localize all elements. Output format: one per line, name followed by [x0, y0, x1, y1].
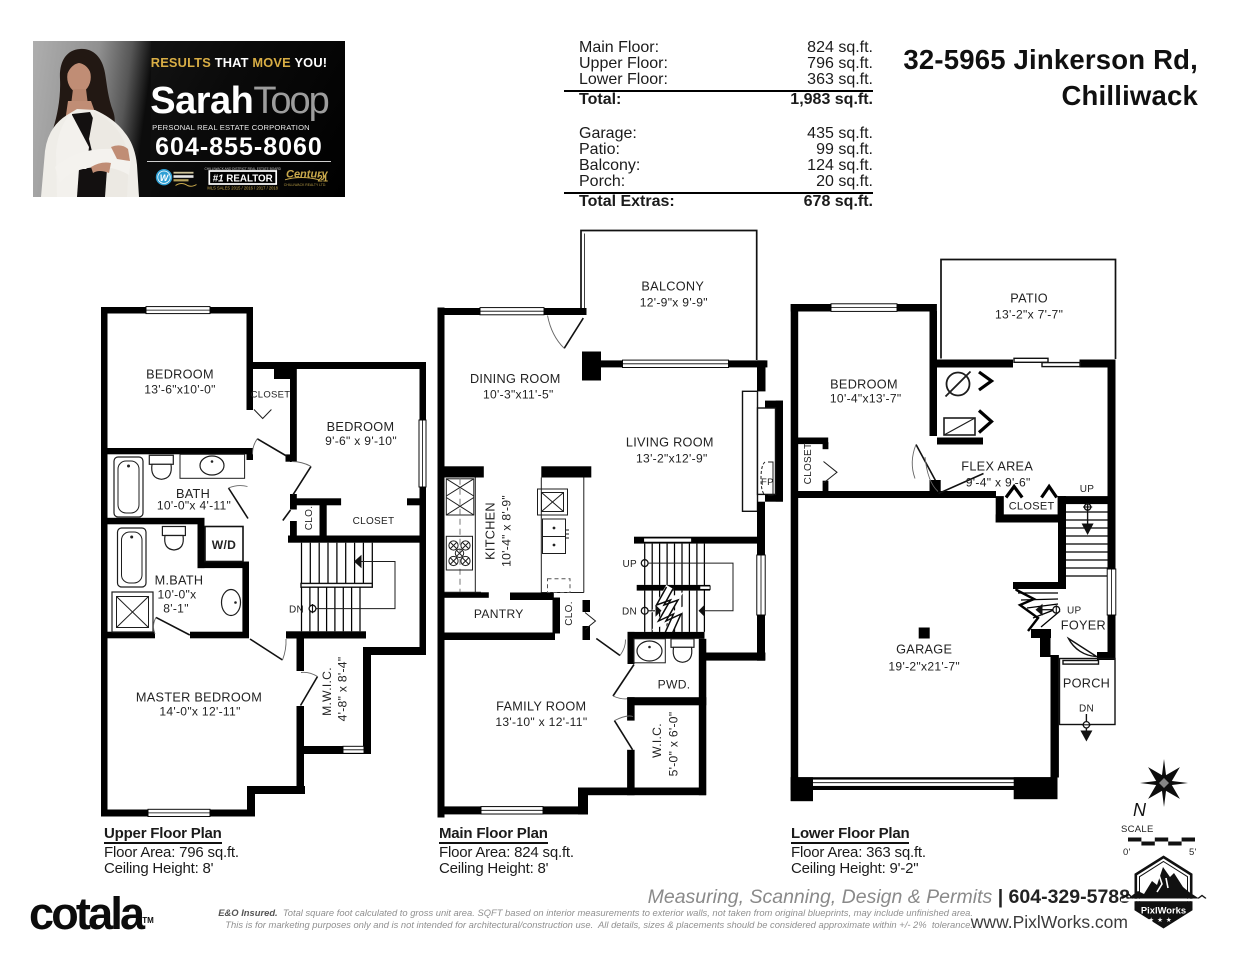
- svg-text:PWD.: PWD.: [658, 678, 691, 692]
- svg-text:8'-1": 8'-1": [163, 602, 189, 616]
- svg-text:GARAGE: GARAGE: [896, 643, 952, 657]
- svg-text:DN: DN: [1079, 704, 1094, 715]
- svg-text:BEDROOM: BEDROOM: [830, 378, 898, 392]
- svg-text:PORCH: PORCH: [1063, 677, 1110, 691]
- svg-text:13'-10" x 12'-11": 13'-10" x 12'-11": [495, 715, 587, 729]
- svg-text:PixlWorks: PixlWorks: [1141, 905, 1186, 916]
- svg-text:N: N: [1133, 800, 1147, 820]
- svg-text:10'-3"x11'-5": 10'-3"x11'-5": [483, 388, 554, 402]
- svg-text:UP: UP: [1080, 484, 1095, 495]
- svg-text:M.BATH: M.BATH: [155, 574, 204, 588]
- svg-text:4'-8" x 8'-4": 4'-8" x 8'-4": [336, 657, 350, 722]
- svg-text:BALCONY: BALCONY: [641, 280, 704, 294]
- svg-text:DN: DN: [289, 605, 304, 616]
- svg-text:CLOSET: CLOSET: [803, 443, 814, 485]
- svg-text:PATIO: PATIO: [1010, 292, 1048, 306]
- svg-text:W/D: W/D: [212, 538, 236, 552]
- svg-text:10'-0"x 4'-11": 10'-0"x 4'-11": [157, 499, 231, 513]
- svg-text:CLOSET: CLOSET: [353, 516, 395, 527]
- svg-text:FP: FP: [761, 477, 774, 488]
- svg-text:BEDROOM: BEDROOM: [146, 368, 214, 382]
- svg-text:★★★: ★★★: [1148, 916, 1174, 924]
- svg-text:FLEX AREA: FLEX AREA: [961, 460, 1033, 474]
- svg-text:19'-2"x21'-7": 19'-2"x21'-7": [888, 660, 960, 674]
- svg-text:10'-0"x: 10'-0"x: [158, 588, 197, 602]
- svg-text:UP: UP: [1067, 606, 1082, 617]
- svg-text:5': 5': [1189, 847, 1197, 858]
- svg-text:CLOSET: CLOSET: [251, 390, 291, 401]
- svg-text:KITCHEN: KITCHEN: [484, 502, 498, 560]
- svg-text:BEDROOM: BEDROOM: [327, 420, 395, 434]
- svg-text:10'-4"x13'-7": 10'-4"x13'-7": [830, 392, 902, 406]
- svg-text:12'-9"x 9'-9": 12'-9"x 9'-9": [640, 296, 708, 310]
- svg-text:13'-2"x12'-9": 13'-2"x12'-9": [636, 452, 708, 466]
- svg-text:M.W.I.C.: M.W.I.C.: [320, 667, 334, 716]
- svg-text:13'-2"x 7'-7": 13'-2"x 7'-7": [995, 308, 1063, 322]
- svg-text:FOYER: FOYER: [1061, 619, 1106, 633]
- svg-text:SCALE: SCALE: [1121, 824, 1154, 835]
- svg-text:LIVING ROOM: LIVING ROOM: [626, 436, 714, 450]
- svg-text:10'-4" x 8'-9": 10'-4" x 8'-9": [500, 495, 514, 567]
- svg-text:9'-4" x 9'-6": 9'-4" x 9'-6": [966, 476, 1031, 490]
- svg-text:CLOSET: CLOSET: [1009, 501, 1055, 513]
- svg-text:DINING ROOM: DINING ROOM: [470, 372, 561, 386]
- svg-text:UP: UP: [623, 559, 638, 570]
- svg-text:CLO.: CLO.: [564, 601, 575, 626]
- svg-text:CLO.: CLO.: [304, 506, 315, 531]
- svg-text:13'-6"x10'-0": 13'-6"x10'-0": [144, 383, 216, 397]
- svg-text:W.I.C.: W.I.C.: [650, 723, 664, 758]
- svg-text:9'-6" x 9'-10": 9'-6" x 9'-10": [325, 434, 397, 448]
- svg-text:MASTER BEDROOM: MASTER BEDROOM: [136, 691, 262, 705]
- svg-text:FAMILY ROOM: FAMILY ROOM: [496, 700, 586, 714]
- svg-text:PANTRY: PANTRY: [474, 607, 524, 621]
- svg-text:14'-0"x 12'-11": 14'-0"x 12'-11": [159, 705, 240, 719]
- svg-text:5'-0" x 6'-0": 5'-0" x 6'-0": [667, 712, 681, 777]
- svg-text:DN: DN: [622, 607, 637, 618]
- svg-text:0': 0': [1123, 847, 1131, 858]
